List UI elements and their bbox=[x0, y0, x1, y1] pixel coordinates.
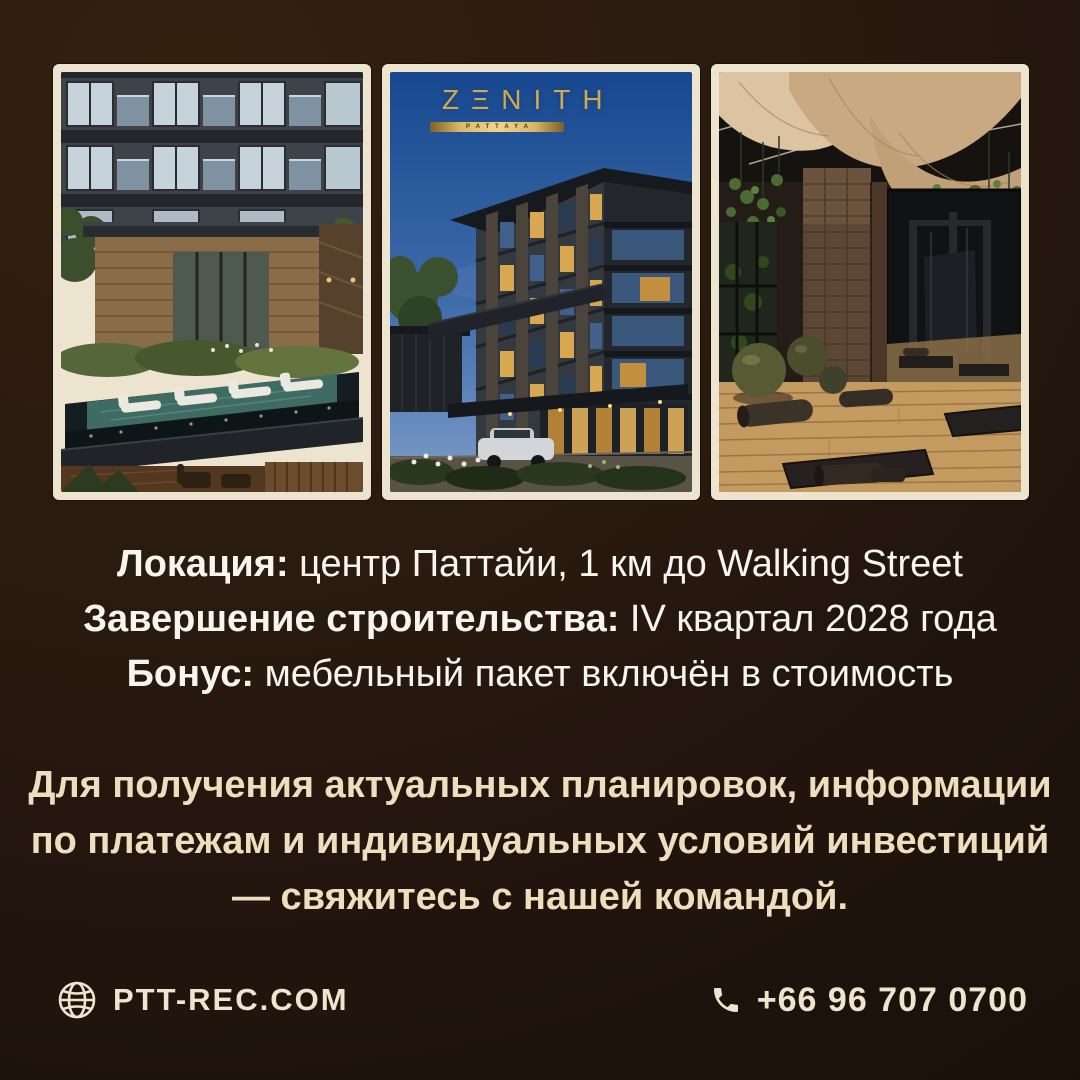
detail-bonus-label: Бонус: bbox=[127, 653, 254, 695]
phone-icon bbox=[710, 984, 742, 1016]
cta-line-1: Для получения актуальных планировок, инф… bbox=[0, 757, 1080, 813]
zenith-logo-text: ZΞNITH bbox=[430, 86, 615, 114]
photo-zenith-render: ZΞNITH PATTAYA bbox=[382, 64, 700, 500]
detail-completion: Завершение строительства: IV квартал 202… bbox=[0, 592, 1080, 647]
detail-completion-label: Завершение строительства: bbox=[83, 598, 619, 640]
zenith-render-illustration bbox=[390, 72, 692, 492]
cta-line-3: — свяжитесь с нашей командой. bbox=[0, 869, 1080, 925]
footer: PTT-REC.COM +66 96 707 0700 bbox=[56, 970, 1028, 1030]
photo-gym-interior bbox=[711, 64, 1029, 500]
detail-completion-value: IV квартал 2028 года bbox=[619, 598, 996, 640]
website-contact: PTT-REC.COM bbox=[56, 979, 349, 1021]
property-details: Локация: центр Паттайи, 1 км до Walking … bbox=[0, 537, 1080, 702]
promo-poster: ZΞNITH PATTAYA bbox=[0, 0, 1080, 1080]
detail-bonus: Бонус: мебельный пакет включён в стоимос… bbox=[0, 647, 1080, 702]
cta-line-2: по платежам и индивидуальных условий инв… bbox=[0, 813, 1080, 869]
photo-exterior-pool bbox=[53, 64, 371, 500]
zenith-logo-subtext: PATTAYA bbox=[460, 124, 534, 130]
gym-interior-illustration bbox=[719, 72, 1021, 492]
zenith-logo: ZΞNITH PATTAYA bbox=[430, 86, 615, 132]
zenith-logo-bar: PATTAYA bbox=[430, 122, 564, 132]
phone-contact: +66 96 707 0700 bbox=[710, 981, 1028, 1020]
exterior-pool-illustration bbox=[61, 72, 363, 492]
detail-location-label: Локация: bbox=[117, 543, 289, 585]
website-label: PTT-REC.COM bbox=[113, 982, 349, 1018]
detail-location: Локация: центр Паттайи, 1 км до Walking … bbox=[0, 537, 1080, 592]
globe-icon bbox=[56, 979, 98, 1021]
phone-number: +66 96 707 0700 bbox=[757, 981, 1028, 1020]
photo-row: ZΞNITH PATTAYA bbox=[53, 64, 1029, 500]
detail-bonus-value: мебельный пакет включён в стоимость bbox=[254, 653, 953, 695]
cta-text: Для получения актуальных планировок, инф… bbox=[0, 757, 1080, 925]
detail-location-value: центр Паттайи, 1 км до Walking Street bbox=[289, 543, 963, 585]
